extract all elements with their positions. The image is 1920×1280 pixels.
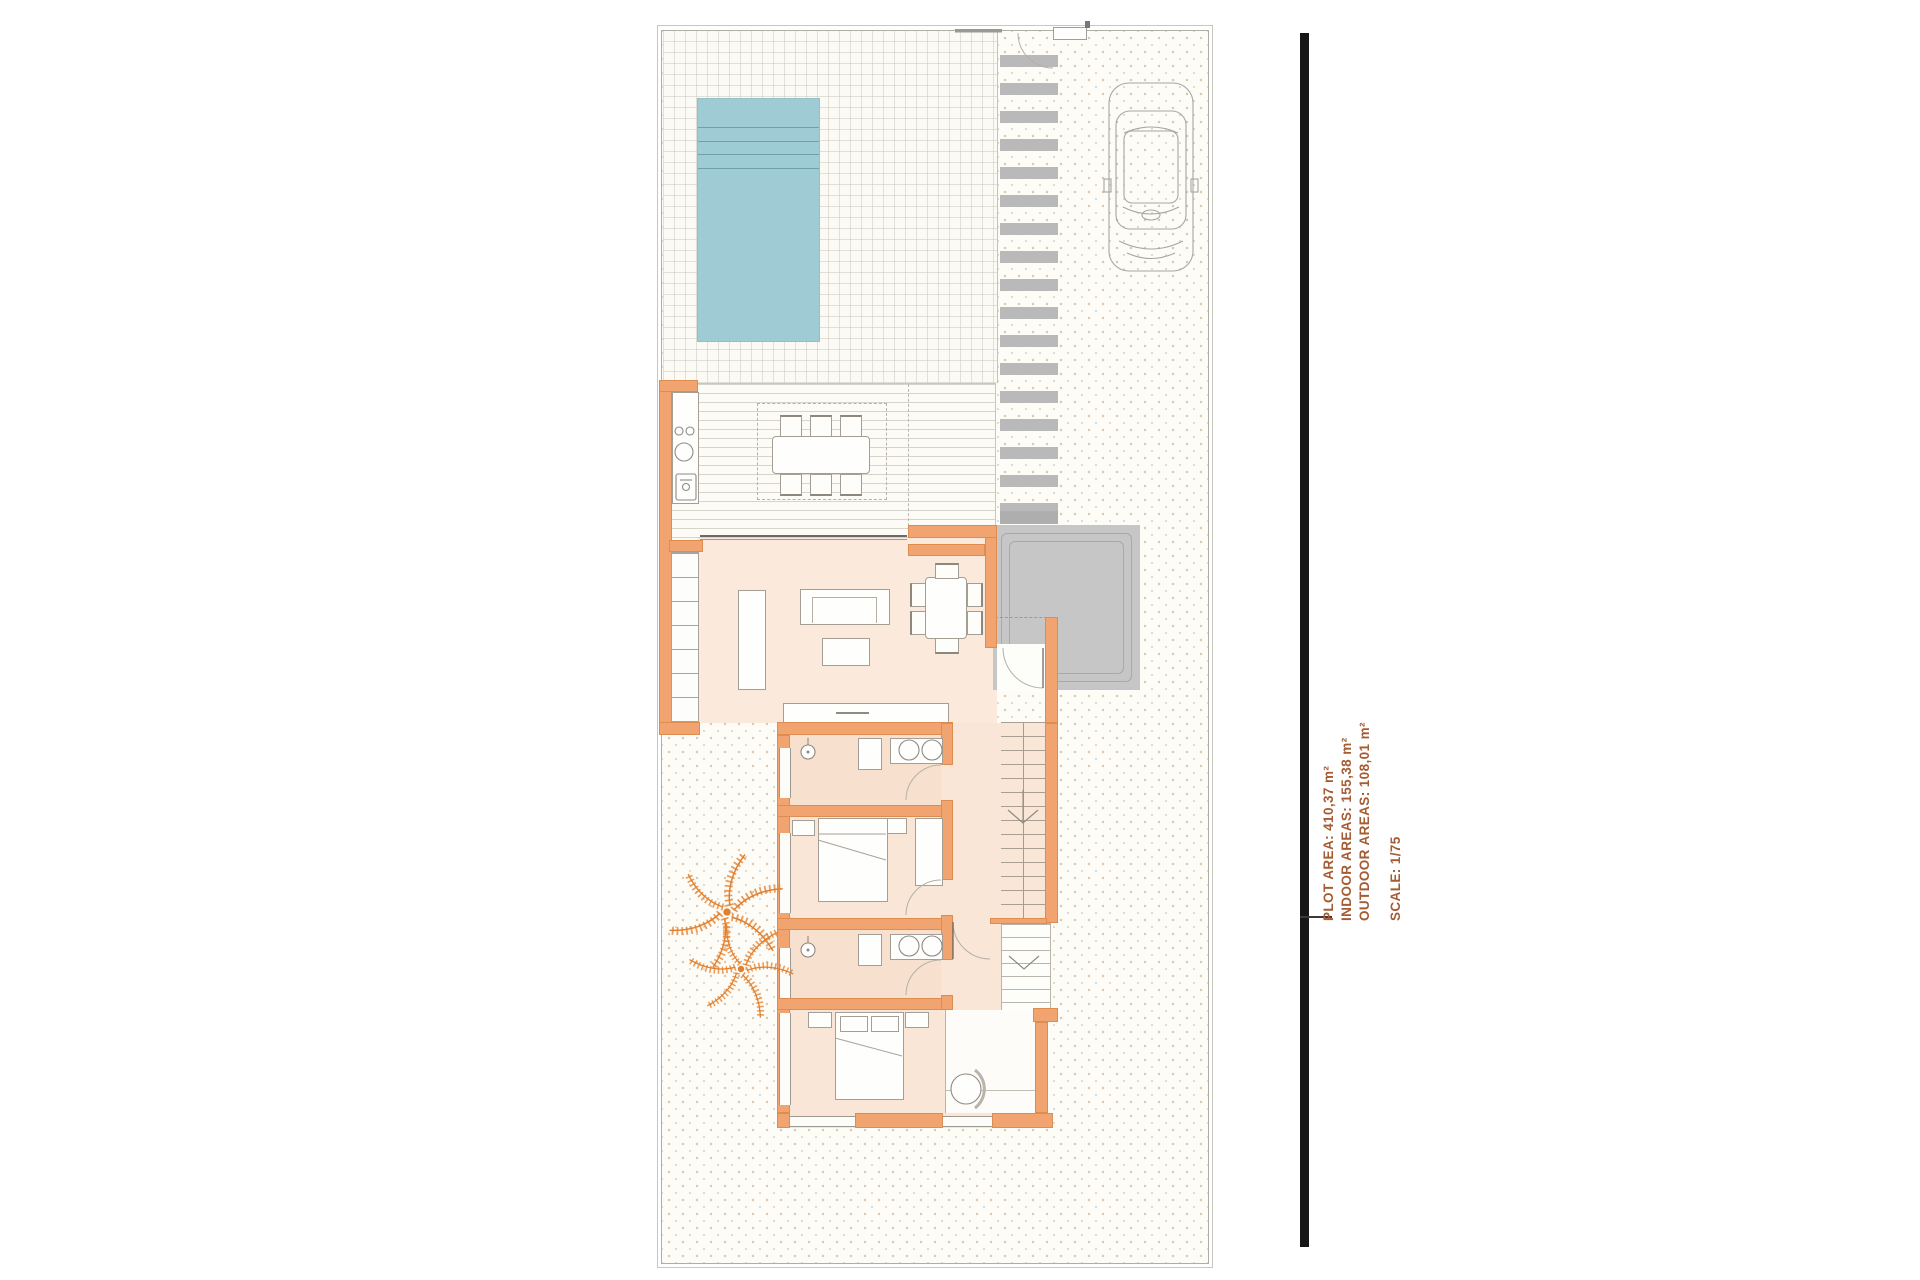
- master-nightstand: [808, 1012, 832, 1028]
- dining-chair: [910, 583, 926, 607]
- bath2-vanity: [890, 934, 943, 960]
- sofa: [800, 589, 890, 625]
- wall-slider-pocket-top: [908, 525, 997, 538]
- wall-terrace-nw-stub: [659, 380, 698, 392]
- wall-slider-pocket-bottom: [908, 544, 985, 556]
- dining-chair: [935, 638, 959, 654]
- wall-stair-landing-stub: [990, 918, 1047, 924]
- bath1-cabinet: [858, 738, 882, 770]
- wall-bath2-master: [777, 998, 953, 1010]
- bedroom1-window: [779, 833, 791, 913]
- bath2-cabinet: [858, 934, 882, 966]
- closet-divider-line: [946, 1090, 1036, 1091]
- dining-table: [925, 577, 967, 639]
- wall-stairs-east: [1045, 723, 1058, 923]
- sideboard: [738, 590, 766, 690]
- floor-plan-canvas: PLOT AREA: 410,37 m² INDOOR AREAS: 155,3…: [0, 0, 1920, 1280]
- entrance-gate-leaf: [1053, 27, 1087, 40]
- outdoor-areas-label: OUTDOOR AREAS: 108,01 m²: [1356, 722, 1374, 921]
- title-bar-rule: [1300, 33, 1309, 1247]
- swimming-pool: [697, 98, 820, 342]
- wall-living-east: [985, 537, 997, 648]
- wall-hall-seg4: [941, 995, 953, 1010]
- dining-chair: [935, 563, 959, 579]
- terrace-chair: [840, 474, 862, 496]
- wall-living-nw-stub: [669, 540, 703, 552]
- master-pillow: [840, 1016, 868, 1032]
- staircase-center-line: [1023, 722, 1024, 920]
- wall-bath1-north: [777, 722, 953, 735]
- exterior-entry-steps: [1001, 923, 1051, 1012]
- terrace-chair: [810, 474, 832, 496]
- bed1-nightstand: [792, 820, 815, 836]
- driveway-paver-last: [1000, 511, 1058, 524]
- terrace-dining-table: [772, 436, 870, 474]
- coffee-table: [822, 638, 870, 666]
- wall-bath1-bed1: [777, 805, 953, 817]
- outdoor-kitchen-counter: [672, 392, 699, 504]
- plan-annotation: PLOT AREA: 410,37 m² INDOOR AREAS: 155,3…: [1320, 722, 1405, 921]
- master-nightstand: [905, 1012, 929, 1028]
- terrace-chair: [840, 415, 862, 437]
- pool-step-line: [698, 168, 819, 169]
- plot-area-label: PLOT AREA: 410,37 m²: [1320, 722, 1338, 921]
- kitchen-island-counter: [783, 703, 949, 724]
- master-closet-area: [945, 1010, 1036, 1113]
- bathroom1-window: [779, 748, 791, 798]
- entry-porch: [997, 644, 1045, 692]
- roof-edge-dashed-line: [908, 384, 909, 541]
- pool-step-line: [698, 141, 819, 142]
- wall-south-mid: [855, 1113, 943, 1128]
- sliding-door-line-2: [700, 539, 907, 540]
- pool-step-line: [698, 127, 819, 128]
- pool-step-line: [698, 154, 819, 155]
- indoor-areas-label: INDOOR AREAS: 155,38 m²: [1338, 722, 1356, 921]
- bathroom2-window: [779, 948, 791, 1000]
- dining-chair: [967, 611, 983, 635]
- closet-south-window: [943, 1116, 992, 1127]
- bed1: [818, 818, 888, 902]
- wall-bed1-bath2: [777, 918, 953, 930]
- terrace-chair: [780, 415, 802, 437]
- master-pillow: [871, 1016, 899, 1032]
- scale-label: SCALE: 1/75: [1387, 722, 1405, 921]
- terrace-chair: [780, 474, 802, 496]
- living-west-window: [671, 552, 699, 724]
- carport-dashed-line: [995, 617, 1047, 618]
- interior-staircase: [1001, 722, 1045, 920]
- wall-south-corner-west: [777, 1113, 790, 1128]
- master-bedroom-window: [779, 1013, 791, 1105]
- wall-south-corner-east: [992, 1113, 1053, 1128]
- bath1-vanity: [890, 738, 943, 764]
- wall-se-step: [1033, 1008, 1058, 1022]
- sofa-seat-line: [812, 597, 877, 623]
- wall-master-east: [1035, 1022, 1048, 1113]
- island-sink-slot: [836, 712, 869, 714]
- sliding-door-line: [700, 535, 907, 537]
- dining-chair: [967, 583, 983, 607]
- wall-entry-east: [1045, 617, 1058, 723]
- master-south-window: [790, 1116, 855, 1127]
- terrace-chair: [810, 415, 832, 437]
- wall-living-sw-corner: [659, 722, 700, 735]
- bed1-wardrobe: [915, 818, 943, 886]
- driveway-pavers: [1000, 55, 1058, 523]
- dining-chair: [910, 611, 926, 635]
